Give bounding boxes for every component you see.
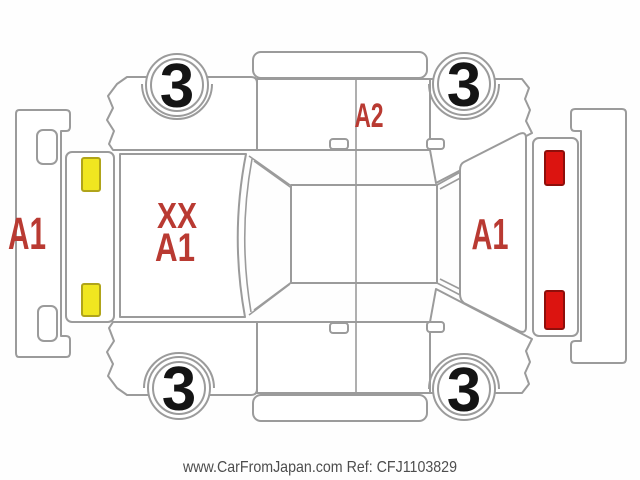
car-unfolded-diagram: 3 3 3 3 A1 XX A1 A2 A1 www.CarFromJapan.… [0,0,640,480]
door-handle-icon [330,323,348,333]
door-handle-icon [427,139,444,149]
front-bumper-damage-label: A1 [8,208,46,259]
a-pillar-bottom [249,281,293,315]
side-panel-damage-label: A2 [355,97,384,135]
damage-diagram: 3 3 3 3 A1 XX A1 A2 A1 www.CarFromJapan.… [0,0,640,480]
rocker-strip-top [253,52,427,78]
watermark-text: www.CarFromJapan.com Ref: CFJ1103829 [182,459,457,476]
wheel-grade-text: 3 [162,355,196,424]
door-handle-icon [330,139,348,149]
wheel-grade-text: 3 [447,356,481,425]
wheel-grade-badge-bottom-right: 3 [433,356,495,425]
wheel-grade-badge-bottom-left: 3 [148,355,210,424]
taillight-top-icon [545,151,564,185]
roof-panel [291,185,437,283]
hood-damage-label-line2: A1 [155,226,195,270]
wheel-grade-text: 3 [160,52,194,121]
rocker-strip-bottom [253,395,427,421]
rear-gate-damage-label: A1 [472,210,509,259]
front-bumper-cutout-top [37,130,57,164]
door-handle-icon [427,322,444,332]
wheel-grade-text: 3 [447,51,481,120]
front-bumper-cutout-bottom [38,306,57,341]
headlight-top-icon [82,158,100,191]
rear-bumper [571,109,626,363]
a-pillar-top [249,156,293,189]
headlight-bottom-icon [82,284,100,316]
windshield-base [245,159,252,312]
taillight-bottom-icon [545,291,564,329]
